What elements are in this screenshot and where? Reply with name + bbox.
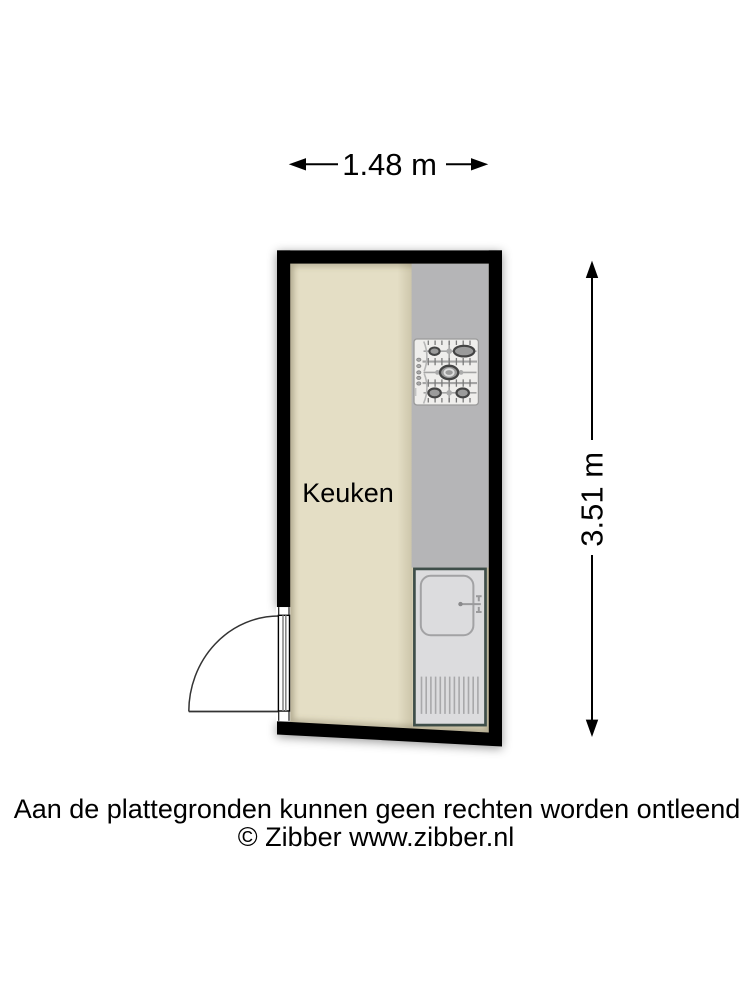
svg-text:© Zibber www.zibber.nl: © Zibber www.zibber.nl bbox=[238, 822, 515, 852]
svg-text:Keuken: Keuken bbox=[302, 478, 394, 508]
svg-text:1.48 m: 1.48 m bbox=[342, 147, 437, 182]
svg-text:3.51 m: 3.51 m bbox=[575, 452, 610, 547]
svg-text:Aan de plattegronden kunnen ge: Aan de plattegronden kunnen geen rechten… bbox=[14, 794, 741, 824]
